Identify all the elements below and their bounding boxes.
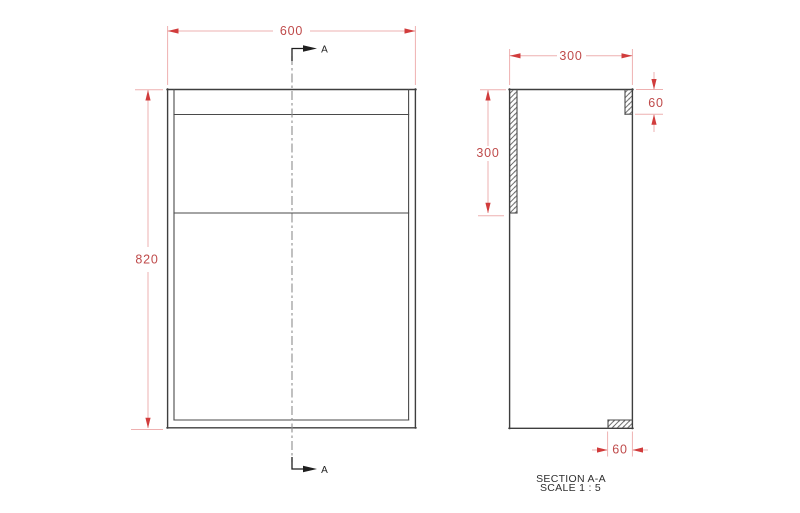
section-cut-bottom-label: A (321, 465, 328, 476)
section-cut-line: A A (292, 44, 328, 476)
bottom-rail-hatch (608, 420, 632, 428)
top-rail-hatch (625, 90, 632, 114)
dim-arrow-right-icon (405, 28, 416, 33)
dimension-front-height: 820 (131, 90, 163, 430)
dim-arrow-down-icon (145, 418, 150, 429)
dimension-bottom-rail: 60 (592, 432, 648, 457)
dim-arrow-up-icon (651, 114, 656, 125)
section-cut-bottom-leader (292, 457, 303, 469)
dim-arrow-down-icon (485, 203, 490, 214)
dimension-section-width: 300 (509, 49, 633, 85)
dim-arrow-down-icon (651, 79, 656, 90)
section-cut-top-leader (292, 49, 303, 62)
technical-drawing-canvas: A A 600 820 (0, 0, 800, 513)
dim-value-top-rail: 60 (648, 96, 664, 110)
dim-arrow-right-icon (622, 53, 633, 58)
section-view (509, 89, 633, 429)
section-caption: SECTION A-A SCALE 1 : 5 (536, 473, 606, 494)
section-cut-top-label: A (321, 44, 328, 55)
dim-value-section-width: 300 (559, 49, 582, 63)
section-caption-scale: SCALE 1 : 5 (540, 482, 601, 494)
dim-value-front-width: 600 (280, 24, 303, 38)
dim-arrow-up-icon (485, 90, 490, 101)
drawing-sheet: A A 600 820 (0, 0, 800, 513)
dimension-top-rail: 60 (635, 72, 664, 132)
section-cut-top-arrow-icon (303, 45, 317, 51)
dim-arrow-left-icon (510, 53, 521, 58)
dim-arrow-right-icon (597, 447, 608, 452)
dimension-back-panel: 300 (476, 90, 506, 216)
dim-value-back-panel: 300 (476, 146, 499, 160)
section-cut-bottom-arrow-icon (303, 466, 317, 472)
dim-arrow-left-icon (168, 28, 179, 33)
dim-value-bottom-rail: 60 (612, 442, 628, 456)
dim-arrow-left-icon (632, 447, 643, 452)
dim-value-front-height: 820 (135, 253, 158, 267)
back-panel-hatch (510, 90, 517, 213)
dim-arrow-up-icon (145, 90, 150, 101)
